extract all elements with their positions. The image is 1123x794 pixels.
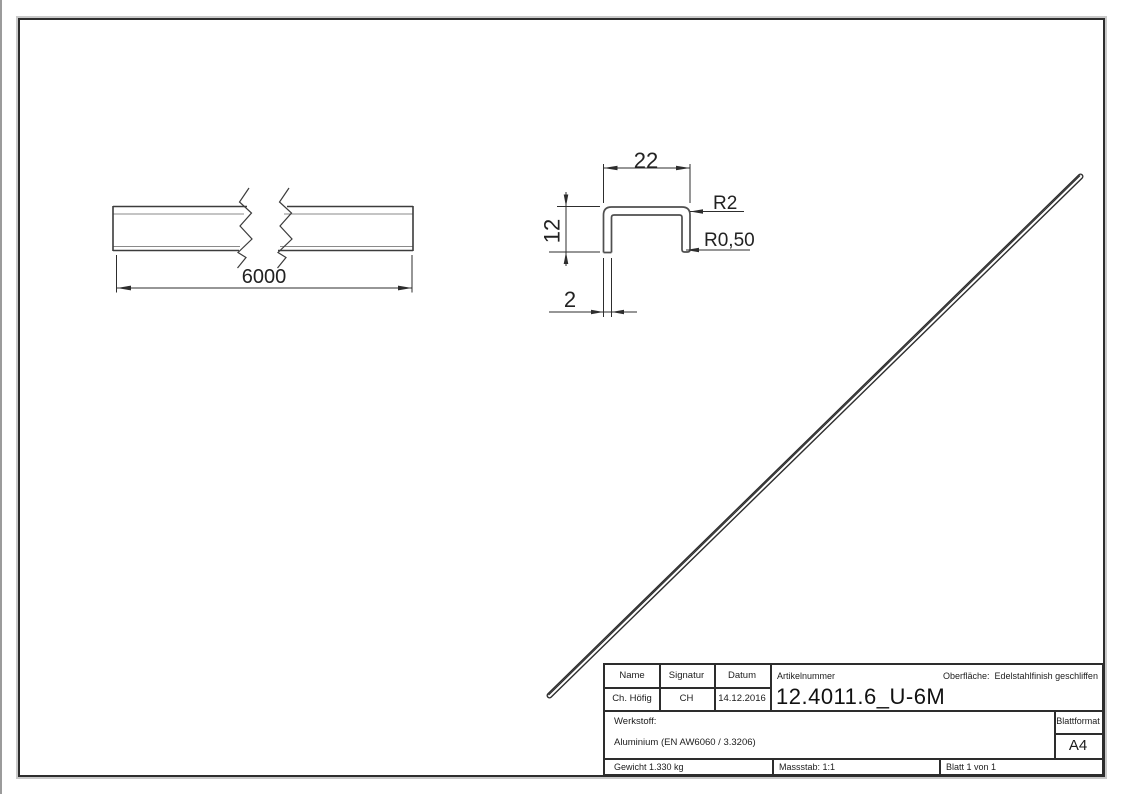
tb-divider <box>605 710 1102 712</box>
tb-value-signatur: CH <box>659 687 714 710</box>
dim-thickness-label: 2 <box>555 287 585 313</box>
tb-blatt: Blatt 1 von 1 <box>946 759 996 775</box>
tb-werkstoff-label: Werkstoff: <box>614 716 656 727</box>
dim-width-label: 22 <box>616 148 676 174</box>
dim-radius-outer-label: R2 <box>713 193 737 215</box>
tb-divider <box>770 665 772 710</box>
tb-header-signatur: Signatur <box>659 665 714 687</box>
isometric-view <box>549 176 1081 696</box>
tb-value-datum: 14.12.2016 <box>714 687 770 710</box>
tb-oberflaeche: Oberfläche: Edelstahlfinish geschliffen <box>943 671 1098 681</box>
tb-header-datum: Datum <box>714 665 770 687</box>
tb-label-artikelnummer: Artikelnummer <box>777 671 835 681</box>
tb-oberflaeche-value: Edelstahlfinish geschliffen <box>995 671 1098 681</box>
tb-artikelnummer: 12.4011.6_U-6M <box>776 684 945 710</box>
dim-radius-inner-label: R0,50 <box>704 230 755 252</box>
tb-werkstoff-value: Aluminium (EN AW6060 / 3.3206) <box>614 737 756 748</box>
tb-divider <box>939 758 941 774</box>
drawing-sheet: { "drawing": { "dims": { "length": "6000… <box>0 0 1123 794</box>
tb-massstab: Massstab: 1:1 <box>779 759 835 775</box>
tb-oberflaeche-label: Oberfläche: <box>943 671 990 681</box>
tb-blattformat-label: Blattformat <box>1054 710 1102 733</box>
dim-height-label: 12 <box>540 211 566 252</box>
dim-length-label: 6000 <box>224 266 304 289</box>
title-block: Name Signatur Datum Artikelnummer Oberfl… <box>603 663 1104 776</box>
tb-header-name: Name <box>605 665 659 687</box>
tb-blattformat-value: A4 <box>1054 733 1102 758</box>
tb-value-name: Ch. Höfig <box>605 687 659 710</box>
tb-gewicht: Gewicht 1.330 kg <box>614 759 684 775</box>
tb-divider <box>772 758 774 774</box>
